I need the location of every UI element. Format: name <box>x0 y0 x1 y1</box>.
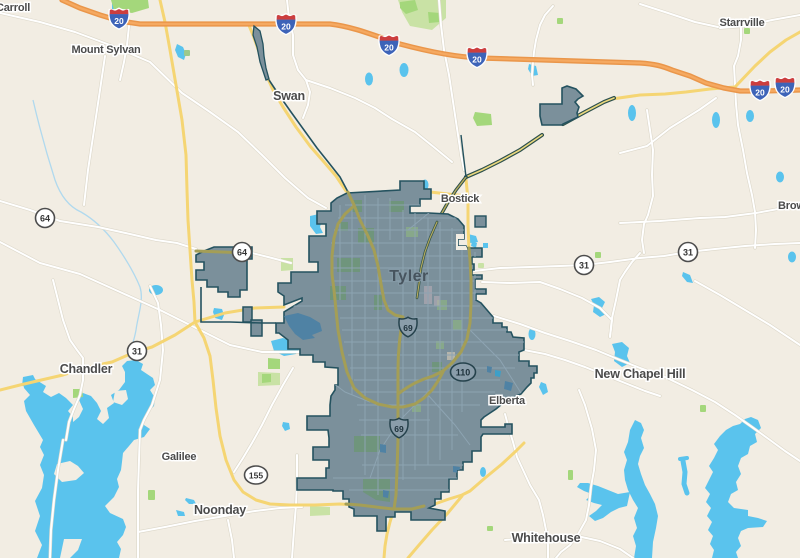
svg-text:64: 64 <box>40 214 50 224</box>
svg-text:Swan: Swan <box>273 89 305 103</box>
svg-text:Noonday: Noonday <box>194 503 246 517</box>
svg-text:Tyler: Tyler <box>389 268 429 285</box>
svg-text:31: 31 <box>683 248 693 258</box>
svg-text:31: 31 <box>132 347 142 357</box>
svg-text:Galilee: Galilee <box>162 451 197 463</box>
svg-text:Brownsboro: Brownsboro <box>778 200 800 212</box>
svg-text:Bostick: Bostick <box>441 193 480 205</box>
svg-text:Elberta: Elberta <box>489 395 526 407</box>
svg-text:110: 110 <box>456 368 471 378</box>
svg-text:Starrville: Starrville <box>719 17 764 29</box>
svg-text:64: 64 <box>237 248 247 258</box>
svg-text:155: 155 <box>249 471 263 481</box>
svg-text:Carroll: Carroll <box>0 2 30 14</box>
svg-text:Mount Sylvan: Mount Sylvan <box>71 44 141 56</box>
svg-text:31: 31 <box>579 261 589 271</box>
svg-text:Chandler: Chandler <box>60 362 113 376</box>
svg-text:New Chapel Hill: New Chapel Hill <box>595 367 686 381</box>
svg-text:Whitehouse: Whitehouse <box>512 531 581 545</box>
